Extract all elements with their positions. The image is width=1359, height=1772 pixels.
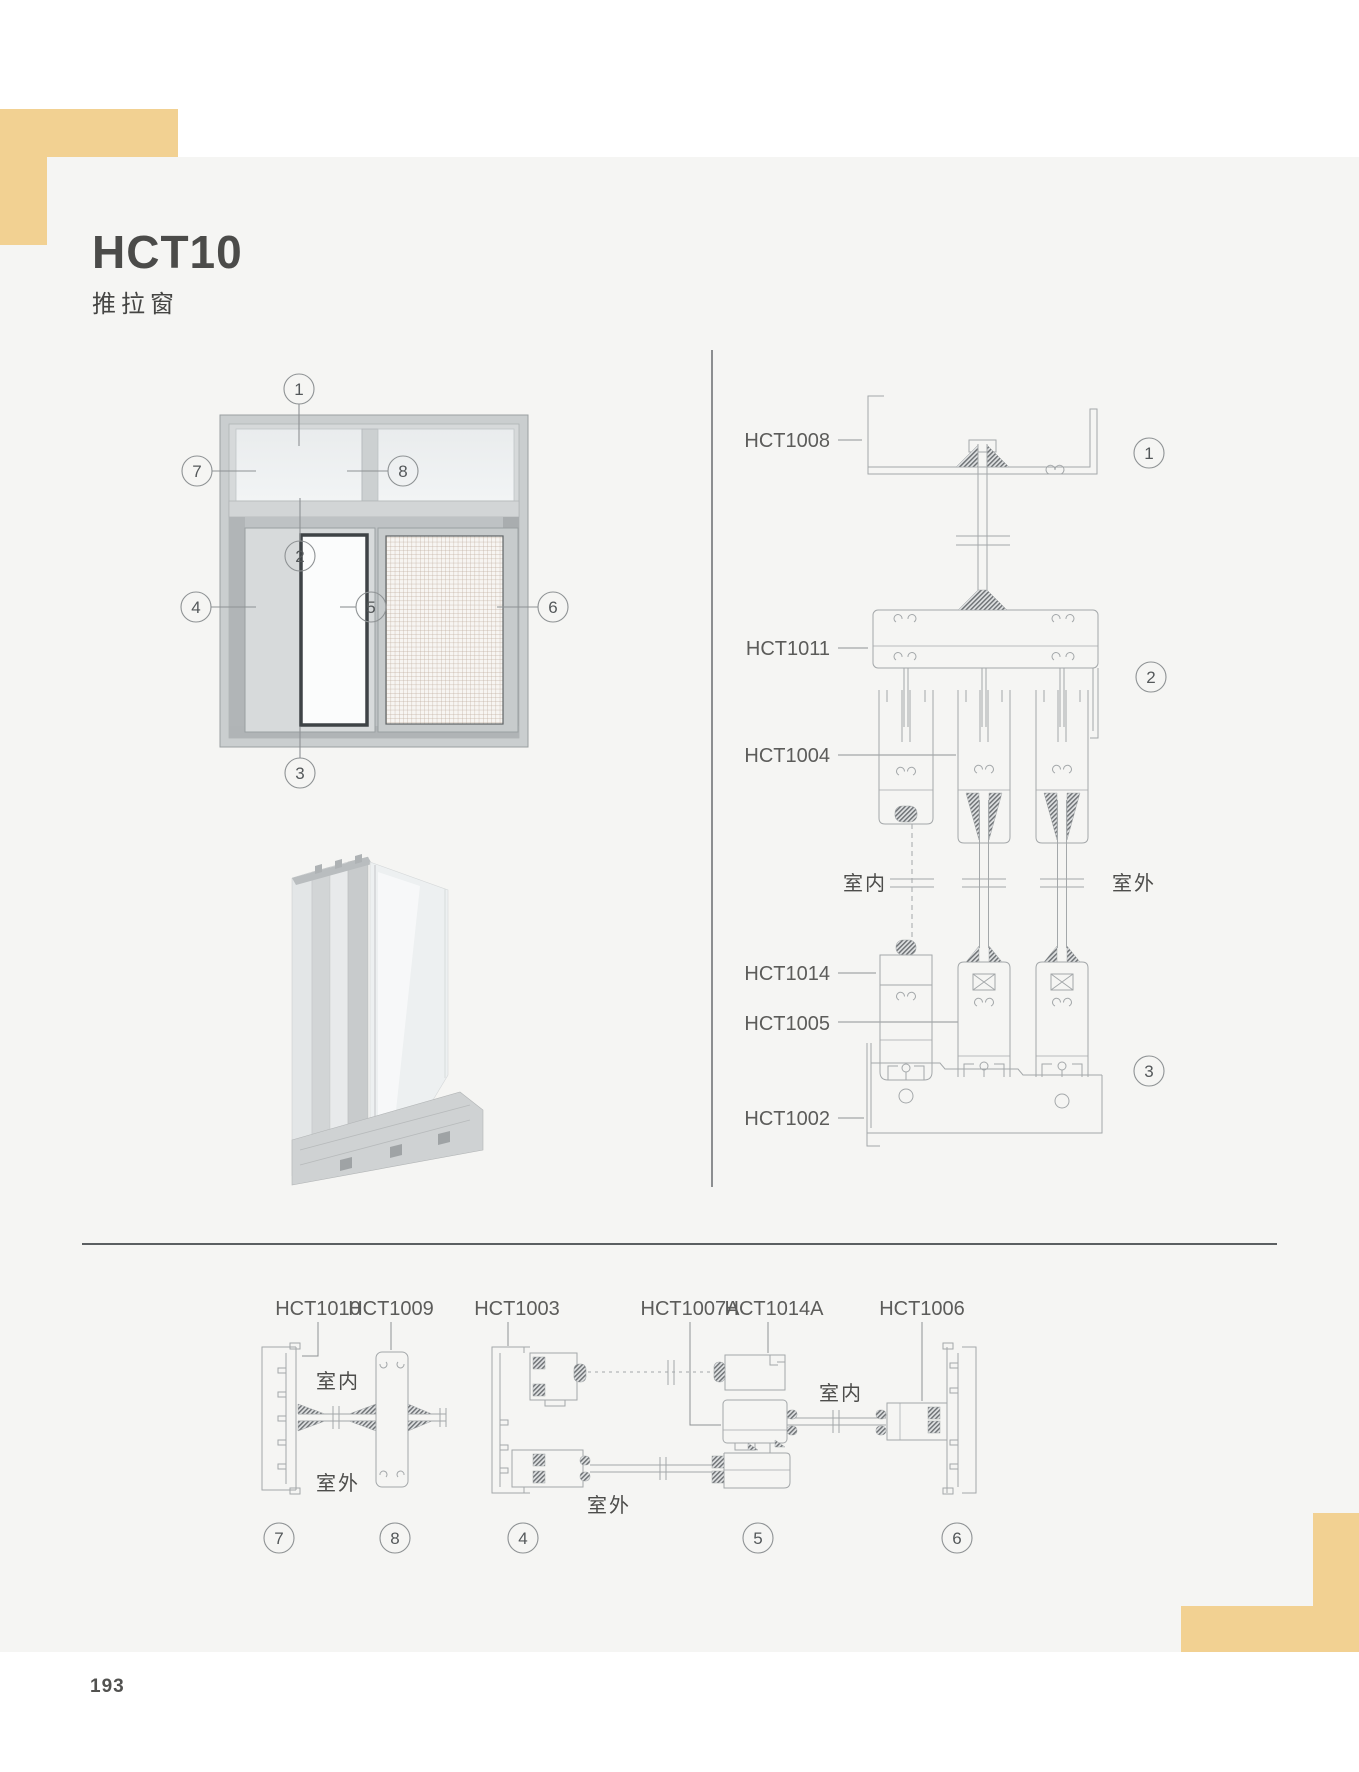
bottom-interlock-hct1014-hct1005 bbox=[880, 955, 932, 1080]
horizontal-section-labels: HCT1010 HCT1009 HCT1003 HCT1007A HCT1014… bbox=[275, 1298, 965, 1517]
callout-8-number: 8 bbox=[398, 462, 407, 481]
horizontal-section-callouts: 7 8 4 5 6 bbox=[264, 1523, 972, 1553]
callout-6-number: 6 bbox=[548, 598, 557, 617]
callout-section-4: 4 bbox=[508, 1523, 538, 1553]
top-mullion bbox=[362, 429, 378, 501]
profile-hct1006-section bbox=[887, 1343, 976, 1494]
callout-section-8: 8 bbox=[380, 1523, 410, 1553]
accent-corner-bottom-right-horizontal bbox=[1181, 1606, 1359, 1652]
callout-7-number: 7 bbox=[192, 462, 201, 481]
insect-screen-sash bbox=[378, 528, 518, 732]
label-hct1006: HCT1006 bbox=[879, 1298, 965, 1320]
profile-hct1008-section bbox=[868, 396, 1097, 474]
callout-section-8-number: 8 bbox=[390, 1529, 399, 1548]
label-hct1011: HCT1011 bbox=[746, 638, 830, 660]
catalog-page: HCT10 推拉窗 bbox=[0, 0, 1359, 1772]
label-hct1004: HCT1004 bbox=[744, 745, 830, 767]
bottom-sash-middle bbox=[958, 946, 1010, 1077]
profile-hct1009-section bbox=[376, 1352, 446, 1487]
callout-5-number: 5 bbox=[366, 598, 375, 617]
page-title: HCT10 bbox=[92, 228, 243, 276]
callout-section-1: 1 bbox=[1134, 438, 1164, 468]
section-divider-line bbox=[82, 1243, 1277, 1245]
horizontal-sections-diagram: HCT1010 HCT1009 HCT1003 HCT1007A HCT1014… bbox=[180, 1280, 1080, 1580]
glass-run-outdoor bbox=[590, 1457, 714, 1480]
vertical-section-callouts: 1 2 3 bbox=[1134, 438, 1166, 1086]
profile-hct1010-section bbox=[262, 1343, 300, 1494]
callout-section-3: 3 bbox=[1134, 1056, 1164, 1086]
label-hct1003: HCT1003 bbox=[474, 1298, 560, 1320]
label-hct1014a: HCT1014A bbox=[725, 1298, 825, 1320]
profile-hct1003-section bbox=[492, 1347, 590, 1493]
callout-1-number: 1 bbox=[294, 380, 303, 399]
callout-section-4-number: 4 bbox=[518, 1529, 527, 1548]
page-number: 193 bbox=[90, 1676, 125, 1698]
label-hct1008: HCT1008 bbox=[744, 430, 830, 452]
title-block: HCT10 推拉窗 bbox=[92, 228, 243, 319]
vertical-section-profiles bbox=[867, 396, 1102, 1146]
callout-section-6-number: 6 bbox=[952, 1529, 961, 1548]
callout-2-number: 2 bbox=[295, 547, 304, 566]
callout-4-number: 4 bbox=[191, 598, 200, 617]
screen-track-dashed bbox=[588, 1360, 714, 1385]
label-hct1002: HCT1002 bbox=[744, 1108, 830, 1130]
outdoor-label-left-group: 室外 bbox=[316, 1472, 360, 1495]
window-frame bbox=[220, 415, 528, 747]
sliding-sash bbox=[245, 528, 375, 732]
upper-glass-pane bbox=[956, 444, 1010, 610]
callout-section-3-number: 3 bbox=[1144, 1062, 1153, 1081]
callout-section-5: 5 bbox=[743, 1523, 773, 1553]
callout-section-2-number: 2 bbox=[1146, 668, 1155, 687]
profile-hct1002-section bbox=[867, 1043, 1102, 1146]
profile-3d-render bbox=[270, 840, 500, 1200]
glass-run-indoor bbox=[787, 1410, 886, 1435]
profile-hct1007a-hct1014a-section bbox=[712, 1355, 790, 1488]
transom-bar bbox=[229, 501, 519, 517]
outdoor-label-right-group: 室外 bbox=[587, 1494, 631, 1517]
callout-section-5-number: 5 bbox=[753, 1529, 762, 1548]
window-elevation-diagram: 1 7 8 2 4 5 6 bbox=[150, 330, 620, 800]
callout-section-1-number: 1 bbox=[1144, 444, 1153, 463]
screen-mesh bbox=[386, 536, 503, 724]
vertical-section-labels: HCT1008 HCT1011 HCT1004 HCT1014 HCT1005 … bbox=[744, 430, 1156, 1130]
callout-3-number: 3 bbox=[295, 764, 304, 783]
label-hct1005: HCT1005 bbox=[744, 1013, 830, 1035]
accent-corner-top-left-vertical bbox=[0, 109, 47, 245]
indoor-label-left-group: 室内 bbox=[316, 1370, 360, 1393]
vertical-section-diagram: HCT1008 HCT1011 HCT1004 HCT1014 HCT1005 … bbox=[640, 330, 1260, 1210]
top-sash-indoor bbox=[879, 690, 934, 955]
callout-section-7: 7 bbox=[264, 1523, 294, 1553]
horizontal-section-profiles bbox=[262, 1343, 976, 1494]
page-subtitle: 推拉窗 bbox=[92, 284, 243, 319]
callout-section-6: 6 bbox=[942, 1523, 972, 1553]
label-hct1009: HCT1009 bbox=[348, 1298, 434, 1320]
glass-sash-section bbox=[512, 1450, 583, 1487]
outdoor-label: 室外 bbox=[1112, 872, 1156, 895]
glass-run-left bbox=[298, 1404, 376, 1431]
top-sash-outdoor bbox=[1036, 690, 1088, 948]
top-sash-middle bbox=[958, 690, 1010, 948]
callout-section-2: 2 bbox=[1136, 662, 1166, 692]
indoor-label-right-group: 室内 bbox=[819, 1382, 863, 1405]
profile-hct1011-section bbox=[873, 590, 1098, 738]
label-hct1014: HCT1014 bbox=[744, 963, 830, 985]
indoor-label: 室内 bbox=[843, 872, 887, 895]
callout-section-7-number: 7 bbox=[274, 1529, 283, 1548]
bottom-sash-outdoor bbox=[1036, 946, 1088, 1077]
